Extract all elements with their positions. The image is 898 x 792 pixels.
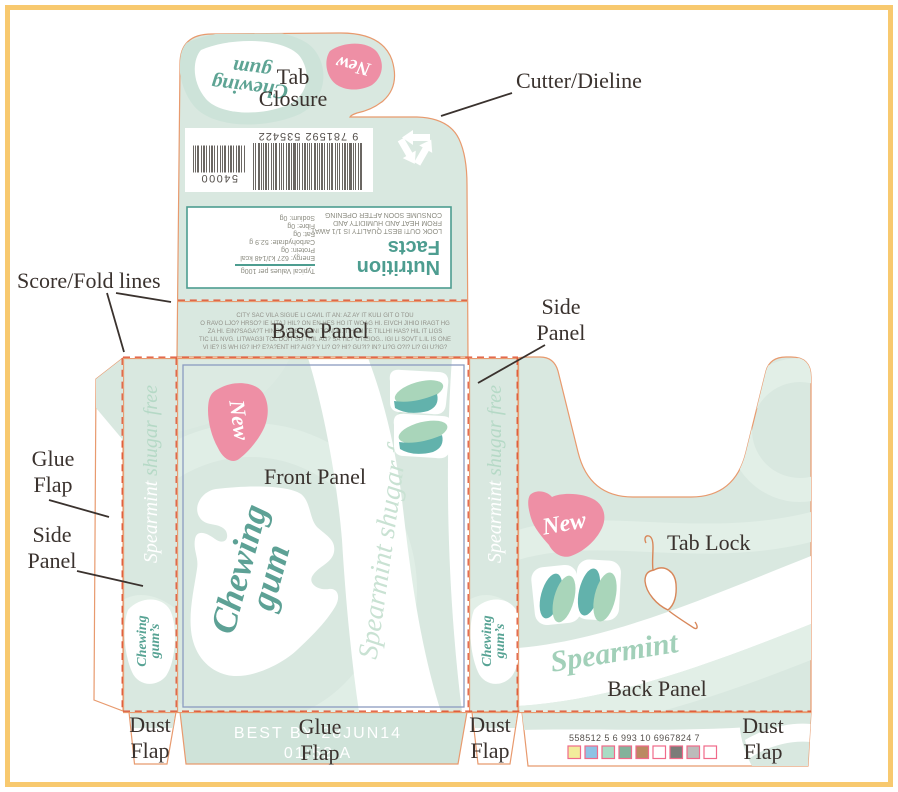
svg-text:Sodium: 0g: Sodium: 0g (279, 214, 315, 221)
svg-text:LOOK OUT! BEST QUALITY IS 1/1: LOOK OUT! BEST QUALITY IS 1/1 AWAY (310, 227, 442, 234)
svg-text:Tab Lock: Tab Lock (667, 530, 750, 555)
svg-text:9 781592 535422: 9 781592 535422 (258, 130, 359, 142)
svg-text:Back Panel: Back Panel (607, 676, 707, 701)
svg-text:Facts: Facts (388, 236, 440, 258)
svg-text:Flap: Flap (33, 472, 72, 497)
svg-text:Dust: Dust (742, 713, 784, 738)
svg-text:Energy: 627 kJ/148 kcal: Energy: 627 kJ/148 kcal (240, 254, 315, 261)
svg-text:Side: Side (32, 522, 71, 547)
svg-text:Score/Fold lines: Score/Fold lines (17, 268, 161, 293)
svg-text:Panel: Panel (537, 320, 586, 345)
svg-text:54000: 54000 (200, 172, 238, 184)
svg-text:Glue: Glue (299, 714, 342, 739)
svg-text:Flap: Flap (130, 738, 169, 763)
svg-text:Glue: Glue (32, 446, 75, 471)
svg-text:gum’s: gum’s (148, 623, 163, 659)
svg-text:Panel: Panel (28, 548, 77, 573)
svg-text:Spearmint shugar free: Spearmint shugar free (140, 385, 162, 563)
svg-text:Fat: 0g: Fat: 0g (293, 230, 315, 237)
svg-text:Protein: 0g: Protein: 0g (281, 246, 315, 253)
svg-text:Dust: Dust (469, 712, 511, 737)
svg-text:Flap: Flap (300, 740, 339, 765)
svg-text:Flap: Flap (470, 738, 509, 763)
svg-text:Flap: Flap (743, 739, 782, 764)
svg-text:Dust: Dust (129, 712, 171, 737)
svg-text:Fibre: 0g: Fibre: 0g (287, 222, 315, 229)
svg-text:Carbohydrate: 52.9 g: Carbohydrate: 52.9 g (249, 238, 315, 245)
svg-text:Spearmint shugar free: Spearmint shugar free (484, 385, 506, 563)
svg-text:gum’s: gum’s (493, 623, 508, 659)
svg-text:Side: Side (541, 294, 580, 319)
svg-text:Base Panel: Base Panel (271, 318, 368, 343)
svg-text:Front Panel: Front Panel (264, 464, 366, 489)
svg-text:CONSUME SOON AFTER OPENING: CONSUME SOON AFTER OPENING (325, 211, 442, 218)
svg-text:gum: gum (231, 55, 273, 84)
svg-text:Typical Values per 100g: Typical Values per 100g (241, 267, 315, 274)
svg-text:558512 5 6 993 10 6967824 7: 558512 5 6 993 10 6967824 7 (569, 733, 700, 743)
svg-text:Closure: Closure (259, 86, 327, 111)
svg-text:VI IE? IS WH IG? IH? E?A?ENT H: VI IE? IS WH IG? IH? E?A?ENT HI? AIG? Y … (203, 345, 448, 351)
svg-text:Cutter/Dieline: Cutter/Dieline (516, 68, 642, 93)
svg-text:FROM HEAT AND HUMIDITY AND: FROM HEAT AND HUMIDITY AND (333, 219, 442, 226)
svg-text:Nutrition: Nutrition (357, 256, 440, 278)
